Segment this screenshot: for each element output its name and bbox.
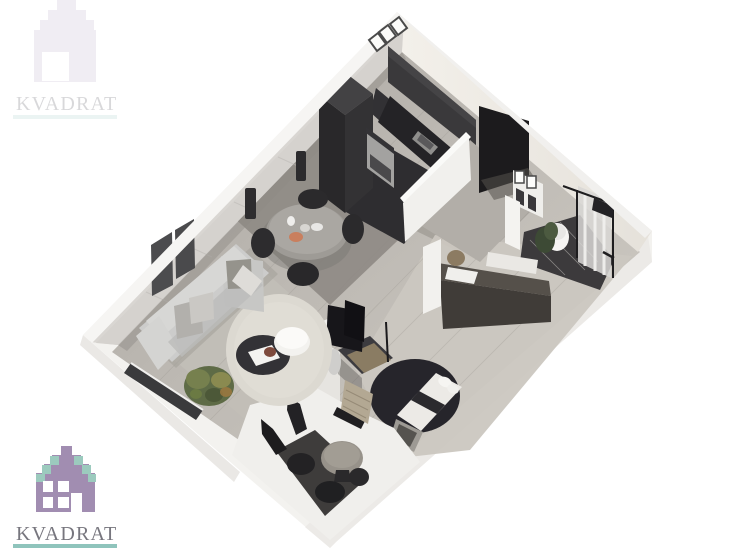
- svg-text:KVADRAT: KVADRAT: [16, 523, 117, 545]
- svg-text:KVADRAT: KVADRAT: [16, 93, 117, 115]
